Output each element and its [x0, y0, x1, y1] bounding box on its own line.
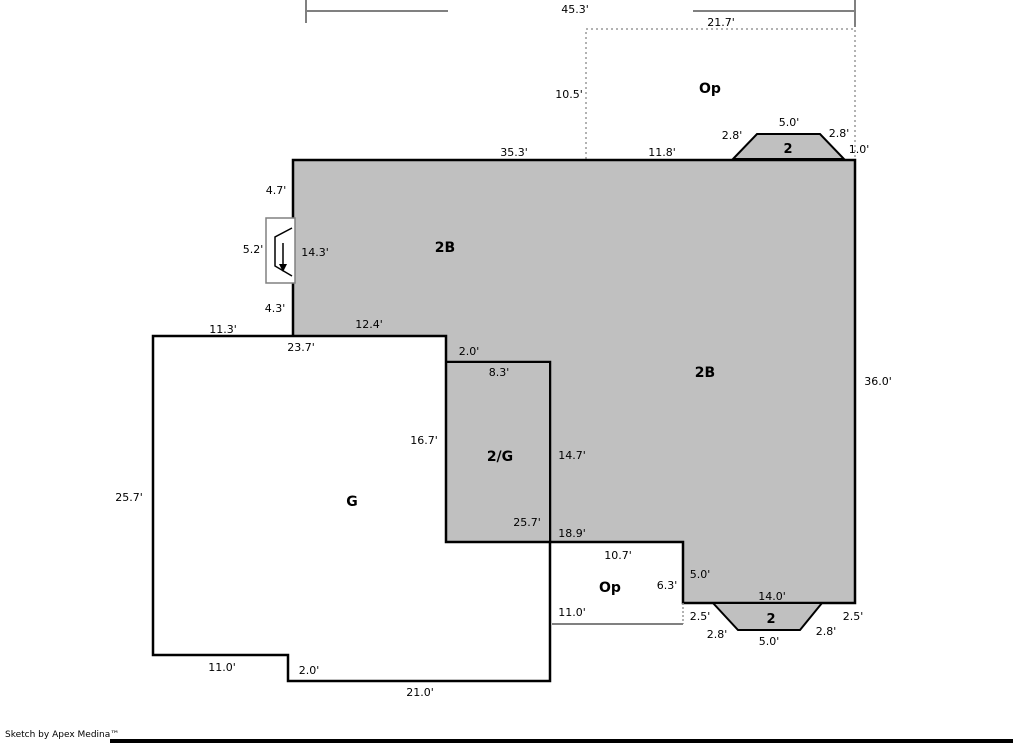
dim-bay-bottom-right-corner: 2.5': [843, 610, 864, 623]
dim-top-right-corner: 1.0': [849, 143, 870, 156]
dim-step-down: 2.0': [459, 345, 480, 358]
dim-open-bottom-right-wall: 5.0': [690, 568, 711, 581]
dim-bay-bottom-width: 5.0': [759, 635, 780, 648]
dim-half-bottom: 25.7': [513, 516, 541, 529]
dim-open-bottom-top: 10.7': [604, 549, 632, 562]
dim-bottom-wall: 14.0': [758, 590, 786, 603]
dim-garage-top: 11.3': [209, 323, 237, 336]
dim-half-right: 14.7': [558, 449, 586, 462]
dim-bay-bottom-right-slant: 2.8': [816, 625, 837, 638]
label-garage: G: [346, 494, 358, 510]
dim-garage-left: 25.7': [115, 491, 143, 504]
dim-main-bottom-ledge: 12.4': [355, 318, 383, 331]
dim-bay-top-left: 2.8': [722, 129, 743, 142]
label-open-top: Op: [699, 81, 721, 97]
dim-bay-bottom-left-corner: 2.5': [690, 610, 711, 623]
fireplace-box: [266, 218, 295, 283]
dim-top-total: 45.3': [561, 3, 589, 16]
dim-half-top: 8.3': [489, 366, 510, 379]
dim-mid-bottom: 18.9': [558, 527, 586, 540]
sketch-credit: Sketch by Apex Medina™: [5, 730, 119, 740]
dim-left-total: 14.3': [301, 246, 329, 259]
label-main-right: 2B: [695, 365, 715, 381]
dim-open-top-width: 21.7': [707, 16, 735, 29]
dim-half-left: 16.7': [410, 434, 438, 447]
dim-left-upper: 4.7': [266, 184, 287, 197]
dim-open-bottom-width: 11.0': [558, 606, 586, 619]
label-bay-window-bottom: 2: [766, 612, 775, 627]
dim-open-bottom-right-total: 6.3': [657, 579, 678, 592]
dim-bay-bottom-left-slant: 2.8': [707, 628, 728, 641]
dim-garage-bottom: 21.0': [406, 686, 434, 699]
dim-garage-top-total: 23.7': [287, 341, 315, 354]
dim-left-lower: 4.3': [265, 302, 286, 315]
label-garage-half: 2/G: [487, 449, 513, 465]
dim-garage-bottom-left: 11.0': [208, 661, 236, 674]
dim-bay-top-right: 2.8': [829, 127, 850, 140]
dim-top-wall-right: 11.8': [648, 146, 676, 159]
floorplan-canvas: 45.3' 21.7' 10.5' Op 35.3' 11.8' 2.8' 5.…: [0, 0, 1013, 743]
dim-top-wall-left: 35.3': [500, 146, 528, 159]
label-main-upper: 2B: [435, 240, 455, 256]
label-open-bottom: Op: [599, 580, 621, 596]
dim-garage-bottom-step: 2.0': [299, 664, 320, 677]
floorplan-sketch: 45.3' 21.7' 10.5' Op 35.3' 11.8' 2.8' 5.…: [0, 0, 1013, 743]
dim-open-top-height: 10.5': [555, 88, 583, 101]
dim-fireplace-width: 5.2': [243, 243, 264, 256]
footer-bar: [110, 739, 1013, 743]
label-bay-window-top: 2: [783, 142, 792, 157]
dim-bay-top-width: 5.0': [779, 116, 800, 129]
dim-right-total: 36.0': [864, 375, 892, 388]
